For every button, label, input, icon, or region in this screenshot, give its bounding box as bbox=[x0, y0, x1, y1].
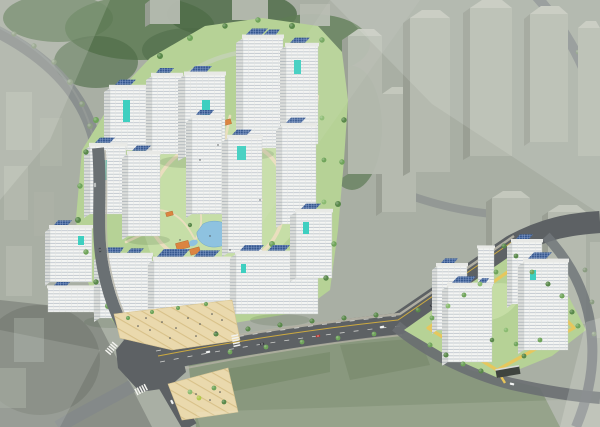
apartment-tower bbox=[186, 110, 223, 218]
apartment-tower bbox=[518, 252, 569, 354]
teal-accent-panel bbox=[241, 264, 246, 273]
teal-accent-panel bbox=[78, 236, 84, 245]
apartment-slab bbox=[47, 282, 95, 312]
teal-accent-panel bbox=[123, 100, 130, 122]
apartment-tower bbox=[122, 146, 161, 240]
teal-accent-panel bbox=[303, 222, 309, 234]
apartment-tower bbox=[146, 68, 183, 158]
apartment-tower bbox=[442, 276, 493, 366]
rendering-stage bbox=[0, 0, 600, 427]
aerial-rendering bbox=[0, 0, 600, 427]
apartment-slab bbox=[290, 204, 333, 282]
